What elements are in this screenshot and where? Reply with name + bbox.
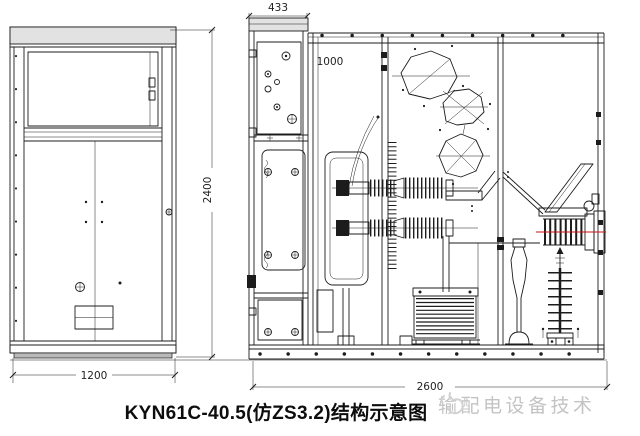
- front-wall: [308, 33, 313, 345]
- door-lock: [76, 283, 85, 292]
- column-hinge: [247, 275, 256, 288]
- front-mid-rail: [24, 128, 162, 141]
- dimension-1200: 1200: [10, 358, 607, 383]
- ct-box: [400, 288, 480, 345]
- cabinet-roof: [308, 33, 604, 43]
- front-base: [10, 341, 176, 358]
- section-view: 433: [246, 2, 610, 393]
- partition-rear: [497, 37, 509, 345]
- cabinet-floor: [249, 345, 604, 359]
- front-lower-door: [75, 141, 172, 341]
- cable-duct: [503, 164, 599, 216]
- dim-1000-label: 1000: [317, 56, 344, 68]
- post-insulator: [505, 239, 533, 344]
- surge-arrester: [542, 247, 579, 345]
- dim-433-label: 433: [268, 2, 288, 14]
- front-view-cabinet-outline: [10, 27, 176, 353]
- watermark: 输配电设备技术: [438, 391, 596, 418]
- pointing-hand-icon: [438, 391, 468, 417]
- wall-bushing: [536, 211, 606, 253]
- lv-compartment: [247, 18, 308, 345]
- front-upper-door: [28, 52, 158, 126]
- technical-drawing: 1200 2400 433: [0, 0, 640, 436]
- rear-wall: [596, 33, 604, 353]
- dimension-2600: 2600: [250, 361, 610, 393]
- dimension-1000: 1000: [317, 56, 344, 68]
- breaker-pole-upper: [332, 171, 500, 200]
- front-roof-band: [10, 27, 176, 44]
- dim-2400-label: 2400: [202, 177, 214, 204]
- panel-screw: [288, 115, 297, 124]
- right-door-hinge: [166, 209, 172, 215]
- nameplate: [75, 306, 113, 329]
- dim-1200-label: 1200: [81, 370, 108, 382]
- front-view: [10, 27, 176, 358]
- dimension-2400: 2400: [170, 27, 215, 360]
